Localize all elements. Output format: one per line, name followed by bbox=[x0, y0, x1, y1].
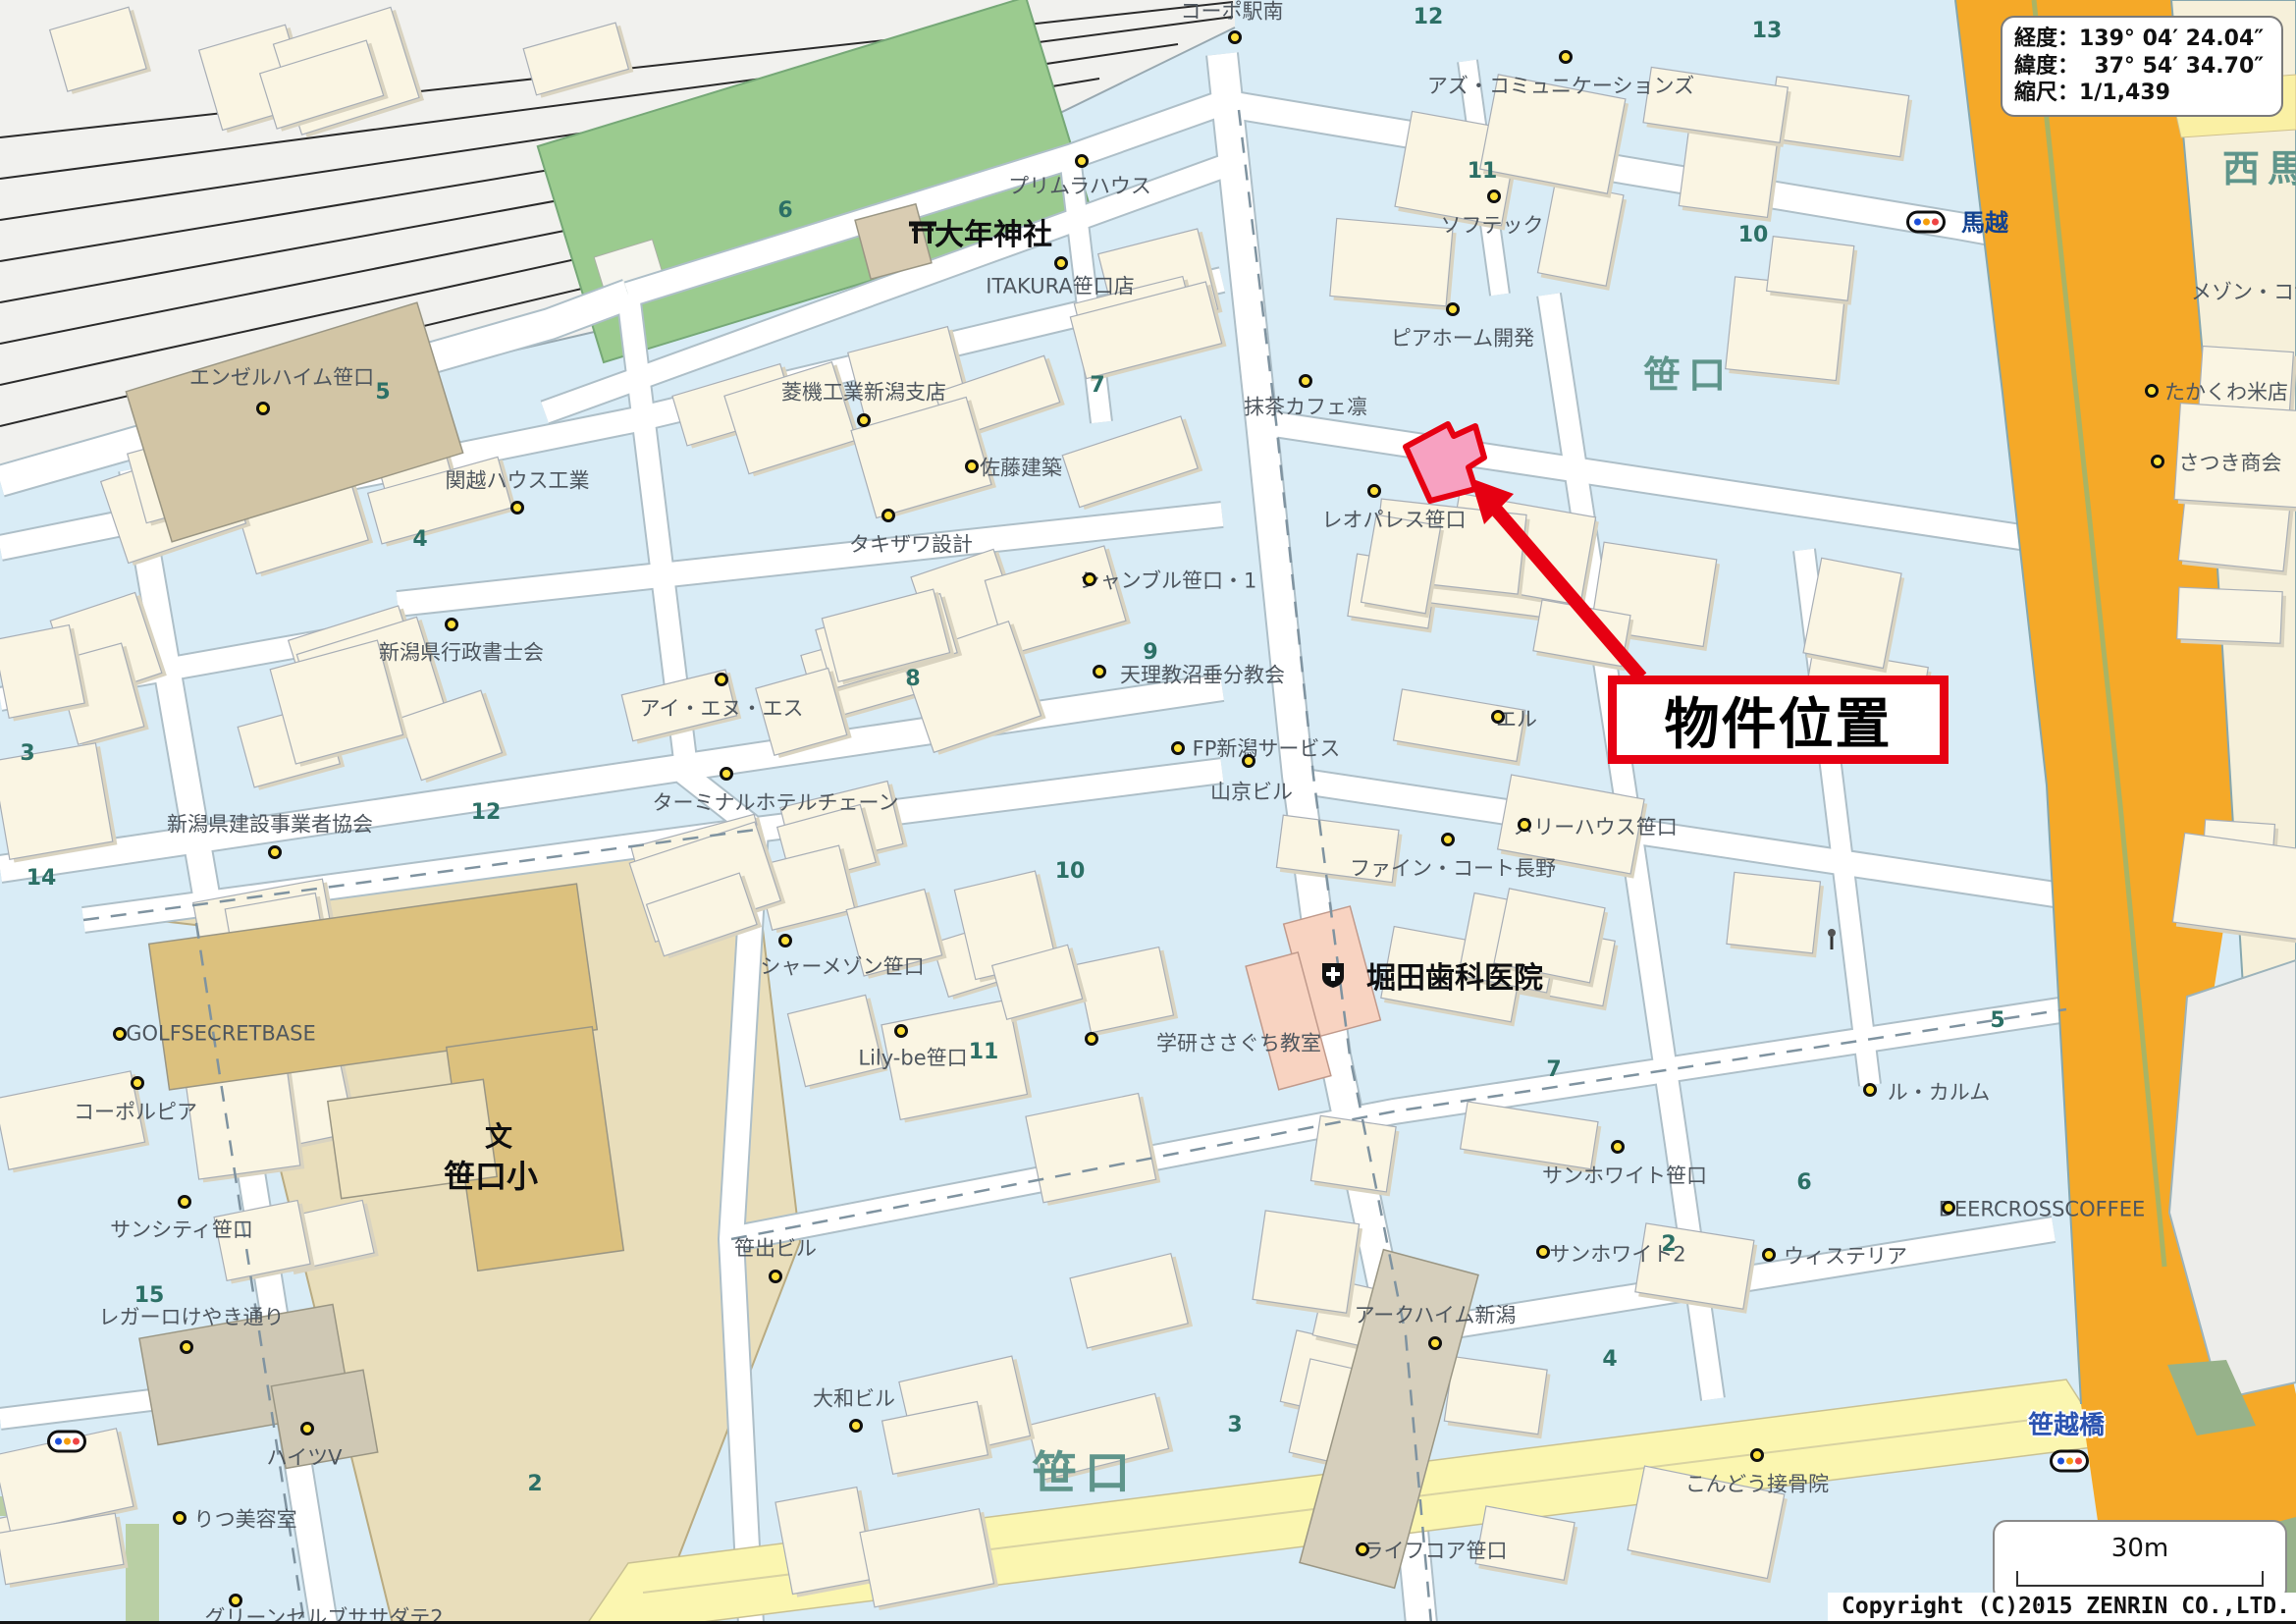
scale-readout: 縮尺：1/1,439 bbox=[2014, 80, 2269, 107]
copyright-notice: Copyright (C)2015 ZENRIN CO.,LTD. bbox=[1828, 1593, 2296, 1621]
scale-bar-rule bbox=[2016, 1571, 2264, 1587]
scale-bar: 30m bbox=[1993, 1520, 2287, 1602]
coords-info-box: 経度：139° 04′ 24.04″ 緯度： 37° 54′ 34.70″ 縮尺… bbox=[2001, 16, 2283, 117]
latitude-readout: 緯度： 37° 54′ 34.70″ bbox=[2014, 53, 2269, 81]
map-canvas bbox=[0, 0, 2296, 1624]
property-annotation-box: 物件位置 bbox=[1608, 676, 1949, 764]
zenrin-map: コーポ駅南アズ・コミュニケーションズソフテックプリムラハウス大年神社ITAKUR… bbox=[0, 0, 2296, 1624]
longitude-readout: 経度：139° 04′ 24.04″ bbox=[2014, 26, 2269, 53]
scale-bar-label: 30m bbox=[1995, 1534, 2285, 1563]
